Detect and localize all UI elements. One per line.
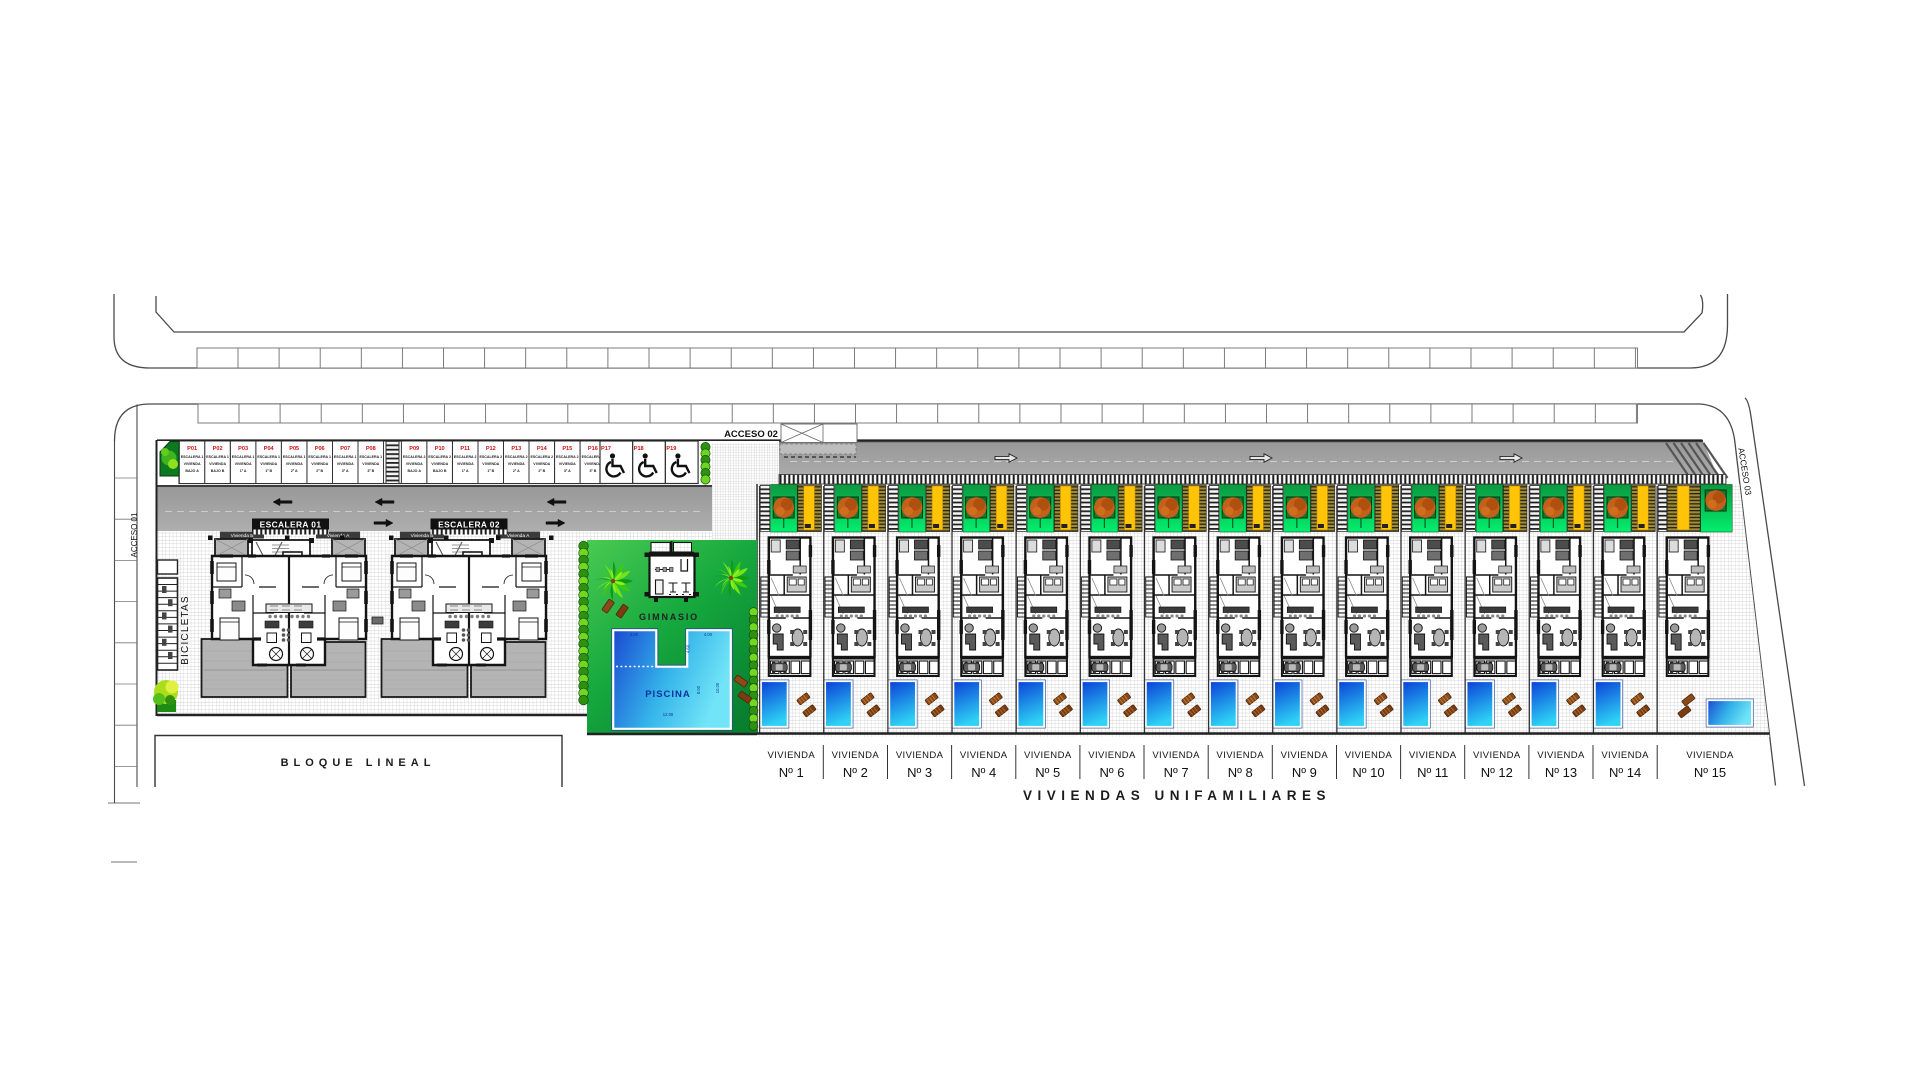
svg-text:VIVIENDA: VIVIENDA <box>184 462 201 466</box>
svg-text:10.00: 10.00 <box>715 682 720 693</box>
svg-text:ESCALERA 1: ESCALERA 1 <box>308 455 331 459</box>
svg-text:2º A: 2º A <box>513 469 520 473</box>
svg-text:VIVIENDA: VIVIENDA <box>1537 750 1585 761</box>
svg-text:P01: P01 <box>187 446 197 452</box>
svg-text:VIVIENDA: VIVIENDA <box>533 462 550 466</box>
svg-text:VIVIENDA: VIVIENDA <box>584 462 601 466</box>
svg-text:Nº 12: Nº 12 <box>1481 765 1513 780</box>
svg-text:BICICLETAS: BICICLETAS <box>180 595 191 665</box>
svg-text:ESCALERA 2: ESCALERA 2 <box>428 455 451 459</box>
svg-text:Nº 14: Nº 14 <box>1609 765 1641 780</box>
svg-text:Nº 2: Nº 2 <box>843 765 868 780</box>
svg-text:PISCINA: PISCINA <box>645 689 691 700</box>
svg-text:P13: P13 <box>511 446 521 452</box>
svg-text:Nº 7: Nº 7 <box>1164 765 1189 780</box>
svg-text:BAJO A: BAJO A <box>185 469 199 473</box>
svg-text:Nº 6: Nº 6 <box>1100 765 1125 780</box>
svg-text:4.00: 4.00 <box>704 632 713 637</box>
svg-text:VIVIENDA: VIVIENDA <box>1088 750 1136 761</box>
svg-text:BAJO B: BAJO B <box>433 469 447 473</box>
svg-text:VIVIENDA: VIVIENDA <box>1152 750 1200 761</box>
svg-text:VIVIENDA: VIVIENDA <box>235 462 252 466</box>
svg-text:VIVIENDA: VIVIENDA <box>1686 750 1734 761</box>
svg-text:VIVIENDA: VIVIENDA <box>960 750 1008 761</box>
svg-text:P07: P07 <box>340 446 350 452</box>
svg-text:ESCALERA 01: ESCALERA 01 <box>260 520 322 530</box>
svg-text:VIVIENDA: VIVIENDA <box>431 462 448 466</box>
svg-text:P14: P14 <box>537 446 548 452</box>
svg-text:GIMNASIO: GIMNASIO <box>639 612 699 622</box>
svg-text:1º B: 1º B <box>265 469 272 473</box>
svg-text:VIVIENDA: VIVIENDA <box>1601 750 1649 761</box>
svg-text:P08: P08 <box>366 446 376 452</box>
svg-text:4.60: 4.60 <box>686 644 691 653</box>
svg-text:Nº 11: Nº 11 <box>1417 765 1448 780</box>
svg-text:P19: P19 <box>666 446 676 452</box>
svg-text:2º B: 2º B <box>316 469 323 473</box>
svg-text:3º A: 3º A <box>564 469 571 473</box>
svg-text:BAJO A: BAJO A <box>407 469 421 473</box>
svg-text:VIVIENDA: VIVIENDA <box>1345 750 1393 761</box>
svg-text:P05: P05 <box>289 446 299 452</box>
svg-text:P11: P11 <box>460 446 470 452</box>
svg-text:ACCESO 01: ACCESO 01 <box>130 512 139 557</box>
svg-text:ESCALERA 1: ESCALERA 1 <box>359 455 382 459</box>
svg-text:VIVIENDA: VIVIENDA <box>1216 750 1264 761</box>
svg-text:Nº 9: Nº 9 <box>1292 765 1317 780</box>
svg-text:Nº 10: Nº 10 <box>1352 765 1384 780</box>
svg-text:ESCALERA 2: ESCALERA 2 <box>403 455 426 459</box>
svg-text:2º B: 2º B <box>538 469 545 473</box>
svg-text:12.00: 12.00 <box>663 712 674 717</box>
svg-text:VIVIENDA: VIVIENDA <box>457 462 474 466</box>
svg-text:VIVIENDA: VIVIENDA <box>286 462 303 466</box>
svg-text:Nº 4: Nº 4 <box>971 765 996 780</box>
svg-text:ESCALERA 2: ESCALERA 2 <box>530 455 553 459</box>
svg-text:VIVIENDA: VIVIENDA <box>209 462 226 466</box>
svg-text:VIVIENDA: VIVIENDA <box>896 750 944 761</box>
svg-text:Nº 3: Nº 3 <box>907 765 932 780</box>
svg-text:VIVIENDA: VIVIENDA <box>260 462 277 466</box>
svg-text:ESCALERA 2: ESCALERA 2 <box>479 455 502 459</box>
svg-text:ESCALERA 1: ESCALERA 1 <box>283 455 306 459</box>
svg-text:VIVIENDA: VIVIENDA <box>337 462 354 466</box>
svg-text:ESCALERA 1: ESCALERA 1 <box>232 455 255 459</box>
svg-text:P18: P18 <box>634 446 644 452</box>
svg-text:3º A: 3º A <box>342 469 349 473</box>
svg-text:VIVIENDA: VIVIENDA <box>768 750 816 761</box>
svg-text:8.00: 8.00 <box>696 685 701 694</box>
svg-text:VIVIENDA: VIVIENDA <box>559 462 576 466</box>
svg-text:VIVIENDA: VIVIENDA <box>406 462 423 466</box>
svg-text:ACCESO 02: ACCESO 02 <box>724 429 778 440</box>
svg-text:VIVIENDAS UNIFAMILIARES: VIVIENDAS UNIFAMILIARES <box>1023 788 1331 803</box>
svg-text:P02: P02 <box>213 446 223 452</box>
svg-text:Nº 15: Nº 15 <box>1694 765 1726 780</box>
svg-text:Nº 8: Nº 8 <box>1228 765 1253 780</box>
svg-text:P10: P10 <box>435 446 445 452</box>
svg-text:Nº 1: Nº 1 <box>779 765 804 780</box>
svg-text:3º B: 3º B <box>367 469 374 473</box>
svg-text:4.00: 4.00 <box>630 632 639 637</box>
svg-text:VIVIENDA: VIVIENDA <box>1281 750 1329 761</box>
svg-text:VIVIENDA: VIVIENDA <box>832 750 880 761</box>
svg-text:P16: P16 <box>588 446 598 452</box>
svg-text:P03: P03 <box>238 446 248 452</box>
svg-text:P12: P12 <box>486 446 496 452</box>
svg-text:BLOQUE LINEAL: BLOQUE LINEAL <box>281 757 436 769</box>
svg-text:ESCALERA 1: ESCALERA 1 <box>257 455 280 459</box>
svg-text:P09: P09 <box>409 446 419 452</box>
svg-text:ESCALERA 1: ESCALERA 1 <box>181 455 204 459</box>
svg-text:ESCALERA 2: ESCALERA 2 <box>454 455 477 459</box>
svg-text:VIVIENDA: VIVIENDA <box>482 462 499 466</box>
svg-text:1º A: 1º A <box>240 469 247 473</box>
svg-text:VIVIENDA: VIVIENDA <box>1473 750 1521 761</box>
svg-text:BAJO B: BAJO B <box>211 469 225 473</box>
svg-text:1º A: 1º A <box>462 469 469 473</box>
svg-text:VIVIENDA: VIVIENDA <box>508 462 525 466</box>
svg-text:P15: P15 <box>562 446 572 452</box>
svg-text:3º B: 3º B <box>589 469 596 473</box>
svg-text:ESCALERA 2: ESCALERA 2 <box>556 455 579 459</box>
svg-text:VIVIENDA: VIVIENDA <box>362 462 379 466</box>
svg-text:ESCALERA 1: ESCALERA 1 <box>206 455 229 459</box>
svg-text:Nº 5: Nº 5 <box>1035 765 1060 780</box>
svg-text:ESCALERA 1: ESCALERA 1 <box>334 455 357 459</box>
svg-text:P17: P17 <box>601 446 611 452</box>
svg-text:ESCALERA 02: ESCALERA 02 <box>438 520 500 530</box>
svg-text:VIVIENDA: VIVIENDA <box>1409 750 1457 761</box>
svg-text:VIVIENDA: VIVIENDA <box>1024 750 1072 761</box>
svg-text:VIVIENDA: VIVIENDA <box>311 462 328 466</box>
svg-text:P06: P06 <box>315 446 325 452</box>
svg-text:1º B: 1º B <box>487 469 494 473</box>
svg-text:P04: P04 <box>264 446 275 452</box>
svg-text:2º A: 2º A <box>291 469 298 473</box>
svg-text:Nº 13: Nº 13 <box>1545 765 1577 780</box>
svg-text:ESCALERA 2: ESCALERA 2 <box>505 455 528 459</box>
